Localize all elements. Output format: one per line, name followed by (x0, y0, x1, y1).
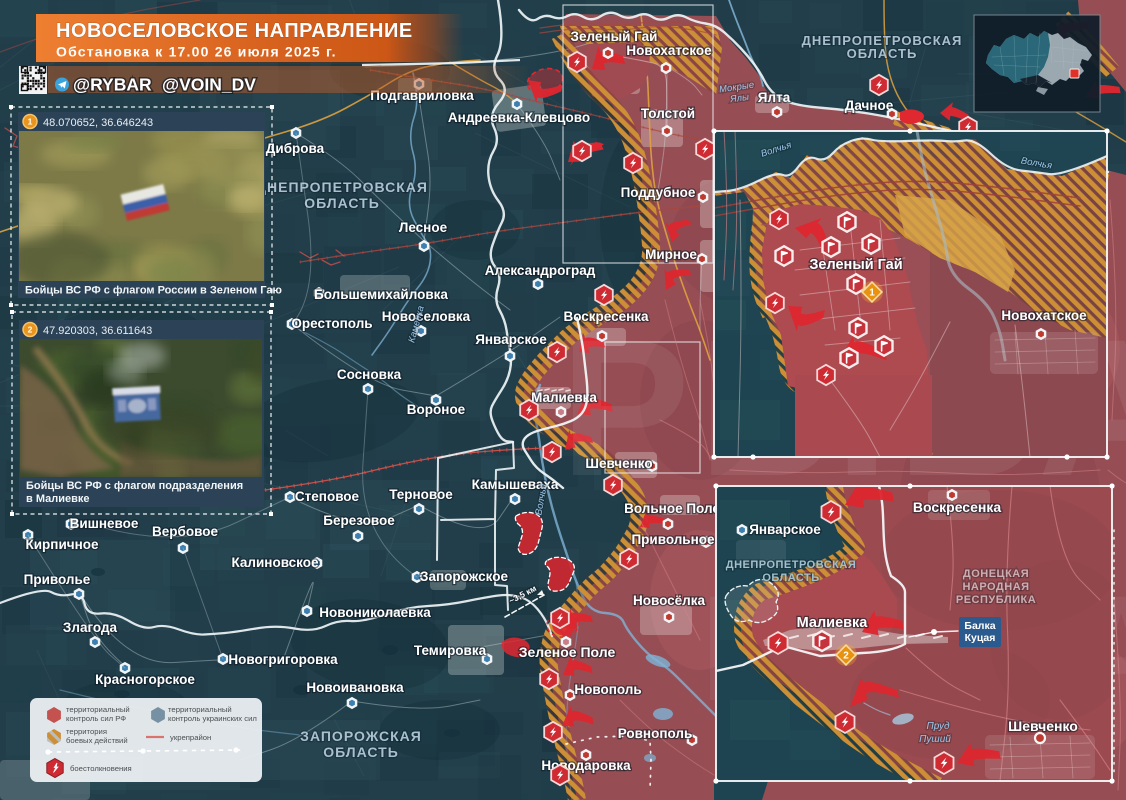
svg-text:Кирпичное: Кирпичное (26, 537, 99, 552)
svg-text:Новогригоровка: Новогригоровка (228, 652, 338, 667)
svg-text:1: 1 (28, 117, 33, 127)
svg-text:Новополь: Новополь (574, 682, 641, 697)
svg-text:Привольное: Привольное (631, 532, 715, 547)
svg-text:Диброва: Диброва (266, 141, 325, 156)
svg-text:Степовое: Степовое (295, 489, 360, 504)
svg-text:Александроград: Александроград (485, 263, 596, 278)
svg-text:Новониколаевка: Новониколаевка (319, 605, 431, 620)
svg-text:2: 2 (843, 651, 849, 662)
svg-text:Большемихайловка: Большемихайловка (314, 287, 448, 302)
svg-text:ОБЛАСТЬ: ОБЛАСТЬ (847, 46, 918, 61)
svg-text:в Малиевке: в Малиевке (26, 493, 90, 505)
svg-text:Темировка: Темировка (414, 643, 487, 658)
svg-text:НОВОСЕЛОВСКОЕ НАПРАВЛЕНИЕ: НОВОСЕЛОВСКОЕ НАПРАВЛЕНИЕ (56, 20, 413, 42)
svg-text:Новохатское: Новохатское (626, 43, 712, 58)
svg-text:ОБЛАСТЬ: ОБЛАСТЬ (304, 195, 380, 211)
svg-text:Сосновка: Сосновка (337, 367, 402, 382)
svg-text:Обстановка к 17.00 26 июля 202: Обстановка к 17.00 26 июля 2025 г. (56, 44, 337, 60)
svg-text:Толстой: Толстой (641, 106, 695, 121)
svg-text:@RYBAR: @RYBAR (73, 75, 152, 95)
svg-text:ЗАПОРОЖСКАЯ: ЗАПОРОЖСКАЯ (300, 728, 422, 744)
svg-text:территория: территория (66, 727, 107, 736)
svg-text:боевых действий: боевых действий (66, 736, 128, 745)
svg-text:НАРОДНАЯ: НАРОДНАЯ (962, 581, 1029, 593)
svg-text:Бойцы ВС РФ с флагом подраздел: Бойцы ВС РФ с флагом подразделения (26, 480, 243, 492)
svg-text:Поддубное: Поддубное (621, 185, 696, 200)
svg-text:Зеленый Гай: Зеленый Гай (571, 29, 658, 44)
svg-text:ДНЕПРОПЕТРОВСКАЯ: ДНЕПРОПЕТРОВСКАЯ (256, 179, 428, 195)
svg-text:Бойцы ВС РФ с флагом России в: Бойцы ВС РФ с флагом России в Зеленом Га… (25, 285, 282, 297)
svg-text:Красногорское: Красногорское (95, 672, 195, 687)
svg-text:Березовое: Березовое (323, 513, 395, 528)
svg-text:Воскресенка: Воскресенка (913, 499, 1001, 515)
svg-text:Терновое: Терновое (389, 487, 453, 502)
svg-text:территориальный: территориальный (168, 705, 232, 714)
svg-text:Калиновское: Калиновское (232, 555, 319, 570)
svg-text:ДОНЕЦКАЯ: ДОНЕЦКАЯ (963, 568, 1029, 580)
svg-text:Январское: Январское (749, 522, 821, 537)
svg-text:Зеленый Гай: Зеленый Гай (809, 257, 902, 273)
svg-text:Новоивановка: Новоивановка (306, 680, 404, 695)
svg-text:Новохатское: Новохатское (1001, 308, 1087, 323)
svg-text:Мирное: Мирное (645, 247, 697, 262)
svg-text:47.920303, 36.611643: 47.920303, 36.611643 (43, 325, 152, 337)
svg-text:контроль украинских сил: контроль украинских сил (168, 714, 257, 723)
svg-text:территориальный: территориальный (66, 705, 130, 714)
svg-text:@VOIN_DV: @VOIN_DV (162, 75, 256, 95)
svg-text:Малиевка: Малиевка (797, 615, 869, 631)
svg-text:Куцая: Куцая (965, 632, 996, 644)
svg-text:Злагода: Злагода (63, 620, 118, 635)
svg-text:Орестополь: Орестополь (291, 316, 372, 331)
svg-text:Лесное: Лесное (399, 220, 448, 235)
svg-text:ОБЛАСТЬ: ОБЛАСТЬ (762, 572, 819, 584)
svg-text:Пруд: Пруд (926, 721, 949, 732)
svg-text:Андреевка-Клевцово: Андреевка-Клевцово (448, 110, 590, 125)
svg-text:контроль сил РФ: контроль сил РФ (66, 714, 126, 723)
svg-text:Приволье: Приволье (24, 572, 91, 587)
svg-text:ОБЛАСТЬ: ОБЛАСТЬ (323, 744, 399, 760)
svg-text:укрепрайон: укрепрайон (170, 733, 211, 742)
svg-text:Запорожское: Запорожское (420, 569, 508, 584)
svg-text:Дачное: Дачное (845, 98, 894, 113)
svg-text:Ялта: Ялта (758, 90, 791, 105)
svg-text:Балка: Балка (964, 620, 995, 632)
svg-text:РЕСПУБЛИКА: РЕСПУБЛИКА (956, 594, 1036, 606)
svg-text:Январское: Январское (475, 332, 547, 347)
svg-text:2: 2 (28, 325, 33, 335)
svg-text:боестолкновения: боестолкновения (70, 764, 132, 773)
svg-text:Вороное: Вороное (407, 402, 466, 417)
svg-text:Пуший: Пуший (919, 734, 951, 745)
svg-text:Новоселовка: Новоселовка (382, 309, 471, 324)
svg-text:Вишневое: Вишневое (70, 516, 139, 531)
svg-text:Шевченко: Шевченко (1008, 718, 1078, 734)
svg-text:Новосёлка: Новосёлка (633, 593, 706, 608)
svg-text:ДНЕПРОПЕТРОВСКАЯ: ДНЕПРОПЕТРОВСКАЯ (726, 559, 857, 571)
svg-text:48.070652, 36.646243: 48.070652, 36.646243 (43, 117, 153, 129)
svg-text:1: 1 (869, 288, 875, 299)
